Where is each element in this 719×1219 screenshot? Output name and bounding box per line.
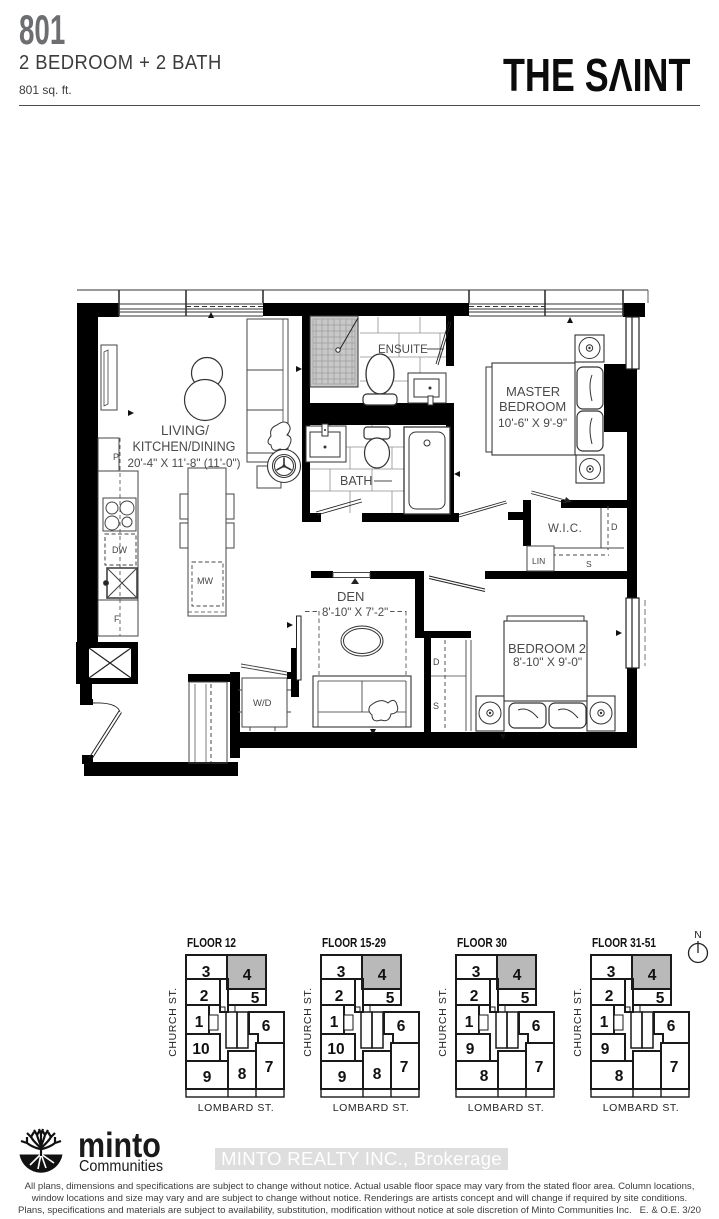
svg-text:FLOOR 15-29: FLOOR 15-29 — [322, 936, 386, 950]
svg-text:4: 4 — [648, 967, 657, 984]
svg-text:8: 8 — [480, 1068, 489, 1085]
svg-text:1: 1 — [465, 1014, 474, 1031]
svg-text:FLOOR 30: FLOOR 30 — [457, 936, 507, 950]
svg-text:5: 5 — [386, 990, 395, 1007]
svg-text:7: 7 — [535, 1059, 544, 1076]
svg-text:FLOOR 31-51: FLOOR 31-51 — [592, 936, 656, 950]
svg-text:F: F — [114, 614, 120, 624]
svg-text:7: 7 — [265, 1059, 274, 1076]
svg-text:5: 5 — [251, 990, 260, 1007]
svg-text:3: 3 — [607, 964, 616, 981]
svg-text:3: 3 — [202, 964, 211, 981]
svg-text:CHURCH ST.: CHURCH ST. — [572, 987, 584, 1057]
svg-text:9: 9 — [601, 1041, 610, 1058]
svg-text:6: 6 — [667, 1018, 676, 1035]
svg-text:MASTER: MASTER — [506, 384, 560, 399]
svg-text:DEN: DEN — [337, 589, 364, 604]
svg-text:LOMBARD ST.: LOMBARD ST. — [198, 1102, 275, 1114]
svg-text:N: N — [694, 930, 701, 941]
svg-text:LIVING/: LIVING/ — [161, 423, 209, 438]
svg-text:FLOOR 12: FLOOR 12 — [187, 936, 236, 950]
svg-text:20'-4" X 11'-8" (11'-0"): 20'-4" X 11'-8" (11'-0") — [128, 456, 241, 470]
svg-text:3: 3 — [472, 964, 481, 981]
svg-text:DW: DW — [112, 545, 127, 555]
svg-text:LOMBARD ST.: LOMBARD ST. — [333, 1102, 410, 1114]
svg-text:BATH: BATH — [340, 474, 372, 488]
svg-text:KITCHEN/DINING: KITCHEN/DINING — [133, 439, 236, 454]
svg-text:ENSUITE: ENSUITE — [378, 344, 428, 356]
svg-text:10: 10 — [192, 1041, 209, 1058]
svg-text:3: 3 — [337, 964, 346, 981]
svg-text:6: 6 — [262, 1018, 271, 1035]
svg-text:4: 4 — [378, 967, 387, 984]
svg-text:CHURCH ST.: CHURCH ST. — [167, 987, 179, 1057]
svg-text:D: D — [433, 657, 440, 667]
svg-text:2: 2 — [470, 988, 479, 1005]
svg-text:7: 7 — [670, 1059, 679, 1076]
svg-text:P: P — [113, 452, 119, 462]
svg-text:6: 6 — [532, 1018, 541, 1035]
svg-text:W.I.C.: W.I.C. — [548, 523, 582, 535]
svg-text:8: 8 — [615, 1068, 624, 1085]
svg-text:8'-10" X 7'-2": 8'-10" X 7'-2" — [322, 607, 388, 619]
svg-text:LIN: LIN — [532, 556, 545, 566]
svg-text:1: 1 — [600, 1014, 609, 1031]
svg-text:MW: MW — [197, 576, 213, 586]
svg-text:LOMBARD ST.: LOMBARD ST. — [603, 1102, 680, 1114]
svg-text:10'-6" X 9'-9": 10'-6" X 9'-9" — [498, 416, 567, 430]
svg-text:8'-10" X 9'-0": 8'-10" X 9'-0" — [513, 655, 582, 669]
svg-text:1: 1 — [195, 1014, 204, 1031]
svg-text:CHURCH ST.: CHURCH ST. — [302, 987, 314, 1057]
svg-text:9: 9 — [466, 1041, 475, 1058]
svg-text:W/D: W/D — [253, 698, 272, 709]
svg-text:2: 2 — [335, 988, 344, 1005]
svg-text:9: 9 — [338, 1069, 347, 1086]
svg-text:7: 7 — [400, 1059, 409, 1076]
svg-text:2: 2 — [200, 988, 209, 1005]
svg-text:1: 1 — [330, 1014, 339, 1031]
svg-text:9: 9 — [203, 1069, 212, 1086]
svg-text:BEDROOM: BEDROOM — [499, 399, 566, 414]
svg-text:2: 2 — [605, 988, 614, 1005]
svg-text:BEDROOM 2: BEDROOM 2 — [508, 641, 586, 656]
svg-text:CHURCH ST.: CHURCH ST. — [437, 987, 449, 1057]
svg-text:D: D — [611, 522, 618, 532]
svg-text:8: 8 — [238, 1066, 247, 1083]
svg-text:S: S — [586, 559, 592, 569]
svg-text:LOMBARD ST.: LOMBARD ST. — [468, 1102, 545, 1114]
svg-text:4: 4 — [243, 967, 252, 984]
svg-text:6: 6 — [397, 1018, 406, 1035]
svg-text:8: 8 — [373, 1066, 382, 1083]
svg-text:5: 5 — [521, 990, 530, 1007]
svg-text:10: 10 — [327, 1041, 344, 1058]
svg-text:5: 5 — [656, 990, 665, 1007]
svg-text:S: S — [433, 701, 439, 711]
svg-text:4: 4 — [513, 967, 522, 984]
